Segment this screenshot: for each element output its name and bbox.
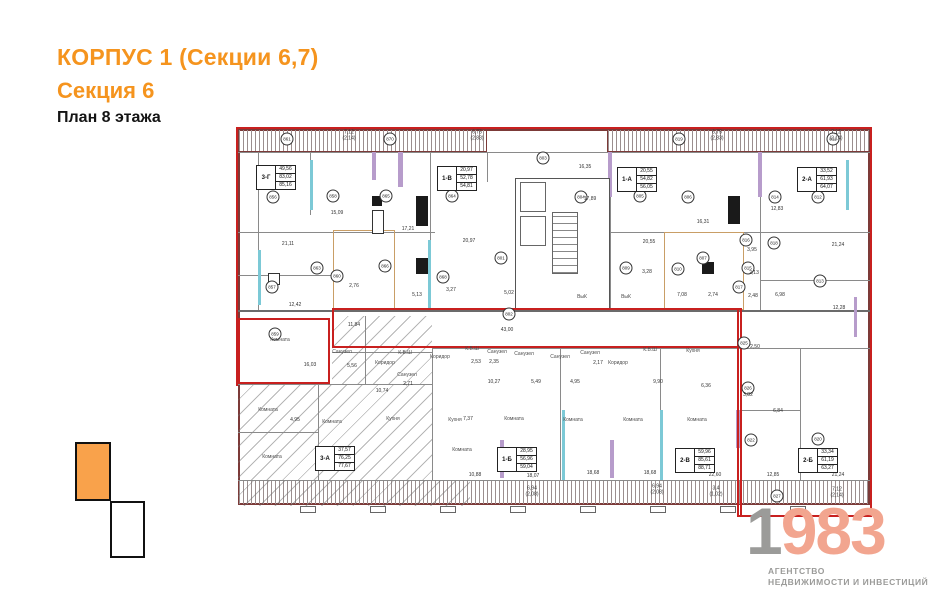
room-label: К.В.Ш: [643, 347, 657, 353]
dimension-label: 43,00: [501, 328, 514, 334]
apartment-area-value: 56,05: [637, 184, 656, 191]
room-label: Комната: [262, 454, 282, 460]
dimension-label: 7,12(2,14): [829, 130, 842, 142]
room-label: Коридор: [375, 360, 395, 366]
room-label: Комната: [563, 417, 583, 423]
room-number-circle: 819: [673, 133, 686, 146]
hatched-area-terrace: [238, 480, 470, 506]
apartment-unit-label: 1-Б: [498, 448, 517, 471]
room-label: К.В.Ш: [398, 350, 412, 356]
room-label: Кухня: [686, 348, 699, 354]
room-number-circle: 809: [620, 262, 633, 275]
header: КОРПУС 1 (Секции 6,7) Секция 6 План 8 эт…: [57, 44, 319, 127]
room-number-circle: 870: [384, 133, 397, 146]
facade-column: [510, 506, 526, 513]
room-label: Санузел: [332, 349, 351, 355]
room-number-circle: 856: [267, 191, 280, 204]
dimension-label: 7,08: [677, 293, 687, 299]
room-number-circle: 802: [503, 308, 516, 321]
apartment-area-value: 54,82: [637, 176, 656, 184]
dimension-label: 16,31: [697, 220, 710, 226]
wall: [238, 152, 870, 153]
room-number-circle: 812: [812, 191, 825, 204]
room-label: ВыК: [621, 294, 631, 300]
dimension-label: 2,17: [593, 361, 603, 367]
apartment-area-value: 49,56: [276, 166, 295, 174]
dimension-label: 3,27: [446, 288, 456, 294]
section-title: Секция 6: [57, 78, 319, 104]
room-number-circle: 814: [769, 191, 782, 204]
room-number-circle: 865: [380, 190, 393, 203]
room-number-circle: 817: [733, 281, 746, 294]
apartment-area-value: 56,96: [517, 456, 536, 464]
purple-partition-wall: [854, 297, 857, 337]
apartment-area-value: 63,27: [818, 465, 837, 472]
room-label: Комната: [504, 416, 524, 422]
room-number-circle: 866: [379, 260, 392, 273]
apartment-unit-label: 2-В: [676, 449, 695, 472]
room-label: Санузел: [580, 350, 599, 356]
room-number-circle: 860: [331, 270, 344, 283]
room-number-circle: 861: [281, 133, 294, 146]
wall: [238, 480, 870, 481]
apartment-unit-label: 1-А: [618, 168, 637, 191]
teal-partition-wall: [846, 160, 849, 210]
room-label: Комната: [623, 417, 643, 423]
apartment-unit-label: 3-А: [316, 447, 335, 470]
dimension-label: 18,68: [644, 471, 657, 477]
apartment-unit-label: 1-В: [438, 167, 457, 190]
kitchen-fixture: [416, 258, 428, 274]
wall: [737, 410, 800, 411]
kitchen-fixture: [416, 196, 428, 226]
room-number-circle: 807: [697, 252, 710, 265]
dimension-label: 6,75(2,83): [710, 130, 723, 142]
section-7-key: [110, 501, 145, 558]
apartment-area-value: 37,57: [335, 447, 354, 455]
room-label: Санузел: [514, 351, 533, 357]
apartment-area-value: 33,52: [817, 168, 836, 176]
dimension-label: 22,60: [709, 473, 722, 479]
dimension-label: 6,94(2,08): [525, 486, 538, 498]
dimension-label: 12,42: [289, 303, 302, 309]
room-number-circle: 868: [437, 271, 450, 284]
staircase: [552, 212, 578, 274]
purple-partition-wall: [758, 152, 762, 197]
dimension-label: 16,35: [579, 165, 592, 171]
room-label: К.В.Ш: [465, 346, 479, 352]
dimension-label: 10,88: [469, 473, 482, 479]
dimension-label: 10,74: [376, 389, 389, 395]
dimension-label: 2,53: [471, 360, 481, 366]
room-label: Комната: [258, 407, 278, 413]
apartment-area-value: 77,67: [335, 463, 354, 470]
teal-partition-wall: [660, 410, 663, 480]
room-label: Комната: [452, 447, 472, 453]
dimension-label: 12,85: [767, 473, 780, 479]
room-label: Коридор: [608, 360, 628, 366]
apartment-area-value: 85,61: [695, 457, 714, 465]
wall: [432, 348, 433, 480]
apartment-table: 3-А37,5776,2577,67: [315, 446, 355, 471]
room-number-circle: 863: [311, 262, 324, 275]
dimension-label: 2,50: [750, 345, 760, 351]
room-number-circle: 858: [327, 190, 340, 203]
purple-partition-wall: [372, 152, 376, 180]
teal-partition-wall: [428, 240, 431, 310]
dimension-label: 20,55: [643, 240, 656, 246]
apartment-area-value: 20,97: [457, 167, 476, 175]
apartment-unit-label: 2-Б: [799, 449, 818, 472]
section-boundary-top: [236, 127, 872, 129]
apartment-area-value: 59,96: [695, 449, 714, 457]
teal-partition-wall: [258, 250, 261, 305]
dimension-label: 2,74: [708, 293, 718, 299]
apartment-table: 2-А33,5261,9364,07: [797, 167, 837, 192]
dimension-label: 5,56: [347, 364, 357, 370]
section-boundary-room: [238, 318, 330, 384]
section-boundary-right: [870, 127, 872, 517]
dimension-label: 17,89: [584, 197, 597, 203]
apartment-unit-label: 3-Г: [257, 166, 276, 189]
apartment-area-value: 54,81: [457, 183, 476, 190]
dimension-label: 6,98: [775, 293, 785, 299]
dimension-label: 11,84: [348, 323, 360, 329]
room-label: Кухня: [448, 417, 461, 423]
dimension-label: 2,13: [749, 271, 759, 277]
room-number-circle: 857: [266, 281, 279, 294]
floor-plan: 8618708198118568588658648038048058068148…: [233, 125, 875, 520]
dimension-label: 6,75(2,83): [470, 130, 483, 142]
purple-partition-wall: [610, 440, 614, 478]
dimension-label: 10,27: [488, 380, 501, 386]
room-label: Санузел: [487, 349, 506, 355]
dimension-label: 5,49: [531, 380, 541, 386]
room-label: Комната: [687, 417, 707, 423]
apartment-table: 3-Г49,5683,0285,16: [256, 165, 296, 190]
apartment-table: 2-В59,9685,6188,71: [675, 448, 715, 473]
dimension-label: 2,71: [403, 382, 413, 388]
dimension-label: 21,24: [832, 473, 845, 479]
room-number-circle: 810: [672, 263, 685, 276]
apartment-table: 1-В20,9752,7854,81: [437, 166, 477, 191]
dimension-label: 12,83: [771, 207, 784, 213]
dimension-label: 15,09: [331, 211, 344, 217]
room-number-circle: 820: [812, 433, 825, 446]
section-6-key-highlighted: [75, 442, 111, 501]
facade-column: [370, 506, 386, 513]
wall: [238, 432, 318, 433]
section-boundary-corridor: [332, 308, 742, 348]
dimension-label: 3,28: [642, 270, 652, 276]
apartment-area-value: 52,78: [457, 175, 476, 183]
dimension-label: 5,13: [412, 293, 422, 299]
dimension-label: 6,84: [773, 409, 783, 415]
elevator-shaft: [520, 182, 546, 212]
logo-year: 1983: [746, 498, 928, 564]
wall: [238, 275, 335, 276]
dimension-label: 6,36: [701, 384, 711, 390]
purple-partition-wall: [398, 152, 403, 187]
room-number-circle: 822: [745, 434, 758, 447]
dimension-label: 12,28: [833, 306, 846, 312]
room-label: Коридор: [430, 354, 450, 360]
top-balcony-left: [238, 129, 487, 152]
facade-column: [580, 506, 596, 513]
facade-column: [440, 506, 456, 513]
dimension-label: 2,48: [748, 294, 758, 300]
dimension-label: 7,12(2,14): [342, 130, 355, 142]
teal-partition-wall: [310, 160, 313, 210]
room-number-circle: 806: [682, 191, 695, 204]
dimension-label: 20,97: [463, 239, 476, 245]
apartment-table: 1-А20,5554,8256,05: [617, 167, 657, 192]
room-number-circle: 803: [537, 152, 550, 165]
apartment-area-value: 64,07: [817, 184, 836, 191]
apartment-area-value: 85,16: [276, 182, 295, 189]
dimension-label: 2,35: [489, 360, 499, 366]
room-number-circle: 825: [738, 337, 751, 350]
room-number-circle: 801: [495, 252, 508, 265]
dimension-label: 3,95: [747, 248, 757, 254]
dimension-label: 3,82: [743, 393, 753, 399]
room-label: Комната: [322, 419, 342, 425]
apartment-area-value: 59,04: [517, 464, 536, 471]
facade-column: [300, 506, 316, 513]
apartment-table: 2-Б33,3461,1963,27: [798, 448, 838, 473]
agency-logo: 1983 АГЕНТСТВО НЕДВИЖИМОСТИ И ИНВЕСТИЦИЙ: [746, 498, 928, 587]
wall: [487, 152, 488, 182]
room-number-circle: 813: [814, 275, 827, 288]
facade-column: [720, 506, 736, 513]
apartment-area-value: 61,19: [818, 457, 837, 465]
room-number-circle: 816: [740, 234, 753, 247]
dimension-label: 18,07: [527, 474, 540, 480]
apartment-table: 1-Б28,9556,9659,04: [497, 447, 537, 472]
dimension-label: 6,94(2,08): [650, 484, 663, 496]
apartment-area-value: 28,95: [517, 448, 536, 456]
dimension-label: 21,11: [282, 242, 294, 248]
kitchen-fixture: [728, 196, 740, 224]
dimension-label: 9,90: [653, 380, 663, 386]
dimension-label: 21,24: [832, 243, 845, 249]
apartment-area-value: 76,25: [335, 455, 354, 463]
dimension-label: 18,68: [587, 471, 600, 477]
elevator-shaft: [520, 216, 546, 246]
apartment-area-value: 20,55: [637, 168, 656, 176]
apartment-area-value: 61,93: [817, 176, 836, 184]
room-label: Комната: [270, 337, 290, 343]
apartment-area-value: 88,71: [695, 465, 714, 472]
dimension-label: 4,95: [290, 418, 300, 424]
room-number-circle: 818: [768, 237, 781, 250]
dimension-label: 16,03: [304, 363, 317, 369]
dimension-label: 17,21: [402, 227, 415, 233]
facade-column: [650, 506, 666, 513]
room-label: Санузел: [550, 354, 569, 360]
room-label: Кухня: [386, 416, 399, 422]
dimension-label: 4,95: [570, 380, 580, 386]
apartment-area-value: 33,34: [818, 449, 837, 457]
bath-fixture: [372, 210, 384, 234]
dimension-label: 7,37: [463, 417, 473, 423]
wall: [560, 348, 561, 480]
room-label: Санузел: [397, 372, 416, 378]
room-number-circle: 864: [446, 190, 459, 203]
logo-tagline: АГЕНТСТВО НЕДВИЖИМОСТИ И ИНВЕСТИЦИЙ: [768, 566, 928, 587]
apartment-area-value: 83,02: [276, 174, 295, 182]
dimension-label: 5,02: [504, 291, 514, 297]
dimension-label: 2,76: [349, 284, 359, 290]
dimension-label: 3,4(1,02): [709, 486, 722, 498]
building-title: КОРПУС 1 (Секции 6,7): [57, 44, 319, 71]
apartment-unit-label: 2-А: [798, 168, 817, 191]
room-label: ВыК: [577, 294, 587, 300]
